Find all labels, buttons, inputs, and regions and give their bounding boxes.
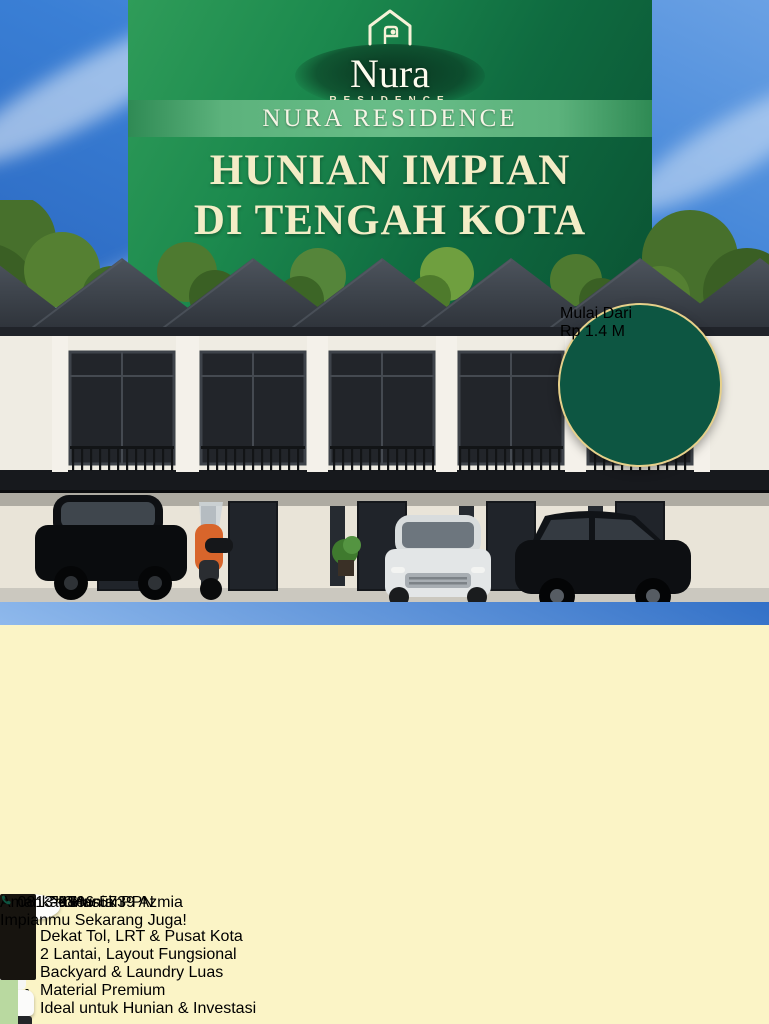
contact-name: Azmia <box>138 894 182 911</box>
badge-face <box>568 313 712 457</box>
sedan-white <box>385 515 491 602</box>
headline-line1: HUNIAN IMPIAN <box>128 146 652 196</box>
fasilitas-item: 2 Lantai, Layout Fungsional <box>40 946 256 964</box>
cloud <box>0 760 180 848</box>
cloud <box>0 680 170 760</box>
flyer-poster: Nura RESIDENCE NURA RESIDENCE HUNIAN IMP… <box>0 0 769 1024</box>
badge-currency: Rp <box>560 323 580 340</box>
name-banner: NURA RESIDENCE <box>128 100 652 137</box>
brand-name: Nura <box>128 53 652 95</box>
price-badge: Mulai Dari Rp 1.4 M <box>558 303 722 467</box>
nura-logo: Nura RESIDENCE <box>128 6 652 106</box>
house-logo-icon <box>358 6 422 48</box>
